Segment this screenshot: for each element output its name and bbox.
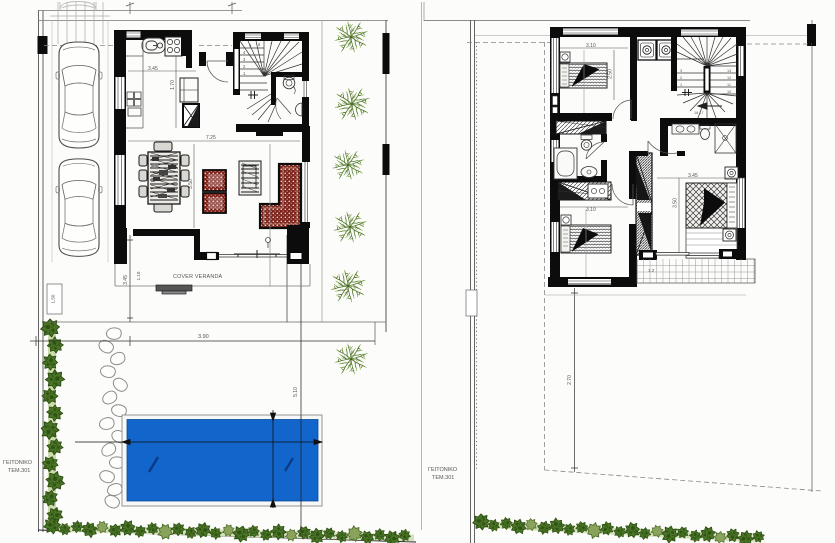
svg-text:5.10: 5.10 (293, 387, 299, 397)
svg-text:16 17: 16 17 (694, 111, 704, 115)
svg-text:ΤΕΜ.301: ΤΕΜ.301 (8, 468, 30, 474)
svg-text:1: 1 (680, 83, 682, 87)
svg-text:13: 13 (727, 69, 731, 73)
svg-text:1.50: 1.50 (51, 294, 56, 303)
svg-text:7.25: 7.25 (206, 135, 216, 141)
svg-text:COVER VERANDA: COVER VERANDA (173, 274, 223, 280)
svg-text:11: 11 (727, 83, 731, 87)
svg-text:1.2: 1.2 (648, 268, 655, 273)
svg-text:3.45: 3.45 (148, 66, 158, 72)
svg-text:3.10: 3.10 (586, 207, 596, 213)
svg-text:1.70: 1.70 (170, 80, 176, 90)
svg-text:ΓΕΙΤΟΝΙΚΟ: ΓΕΙΤΟΝΙΚΟ (428, 467, 458, 473)
svg-text:ΤΕΜ.301: ΤΕΜ.301 (432, 475, 454, 481)
svg-text:12: 12 (727, 76, 731, 80)
svg-text:3.45: 3.45 (123, 275, 129, 285)
svg-text:ΓΕΙΤΟΝΙΚΟ: ΓΕΙΤΟΝΙΚΟ (3, 460, 33, 466)
svg-text:2: 2 (680, 76, 682, 80)
svg-text:3.90: 3.90 (198, 334, 209, 340)
svg-text:3.50: 3.50 (673, 198, 679, 208)
svg-text:3.50: 3.50 (188, 179, 194, 189)
svg-text:1.10: 1.10 (136, 271, 141, 280)
svg-text:10: 10 (727, 90, 731, 94)
svg-text:2.50: 2.50 (608, 69, 614, 79)
svg-text:3.10: 3.10 (586, 43, 596, 49)
svg-text:2.70: 2.70 (567, 375, 573, 385)
svg-text:3: 3 (680, 69, 682, 73)
svg-text:3.45: 3.45 (688, 173, 698, 179)
